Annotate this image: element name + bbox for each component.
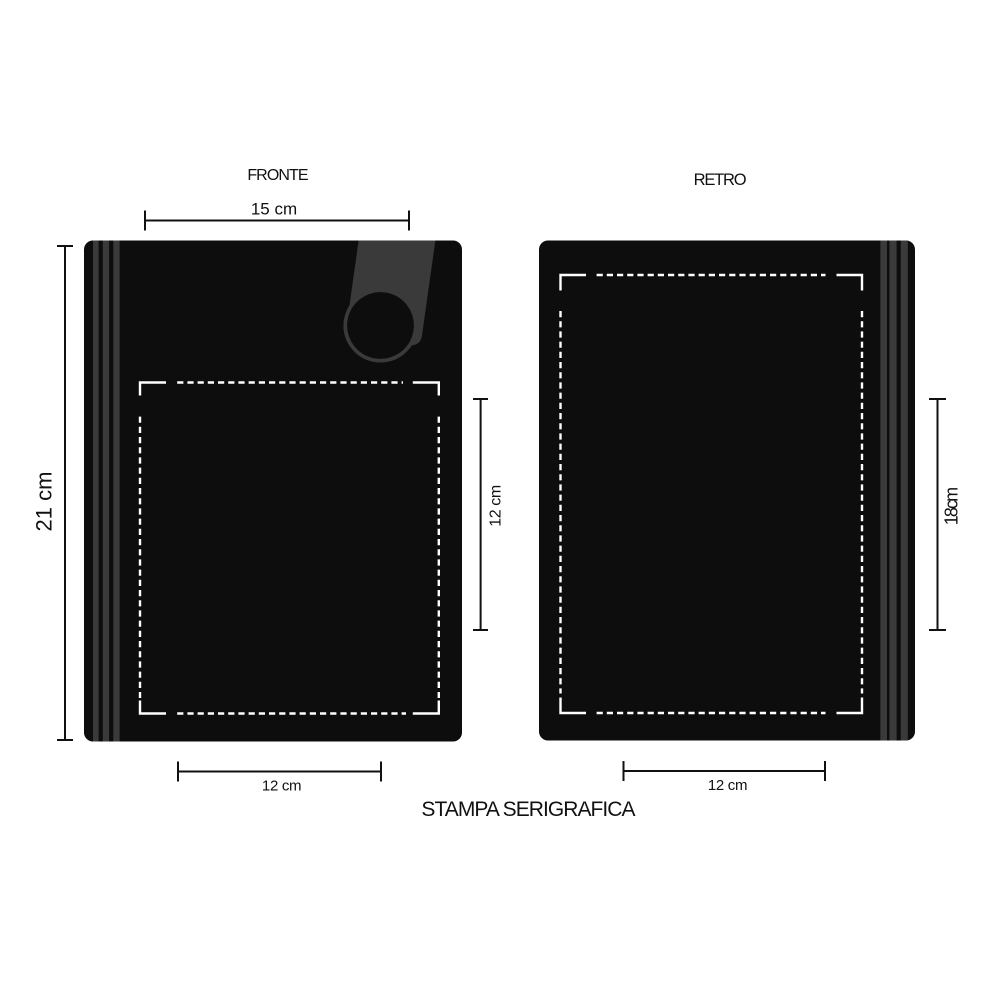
svg-text:FRONTE: FRONTE [247, 167, 308, 184]
svg-text:12 cm: 12 cm [262, 777, 301, 794]
svg-text:RETRO: RETRO [694, 171, 747, 189]
svg-text:STAMPA SERIGRAFICA: STAMPA SERIGRAFICA [421, 798, 635, 821]
svg-text:18cm: 18cm [942, 488, 962, 525]
svg-text:15 cm: 15 cm [251, 199, 297, 218]
svg-text:21 cm: 21 cm [32, 472, 57, 532]
svg-text:12 cm: 12 cm [487, 485, 504, 527]
svg-text:12 cm: 12 cm [708, 777, 747, 794]
